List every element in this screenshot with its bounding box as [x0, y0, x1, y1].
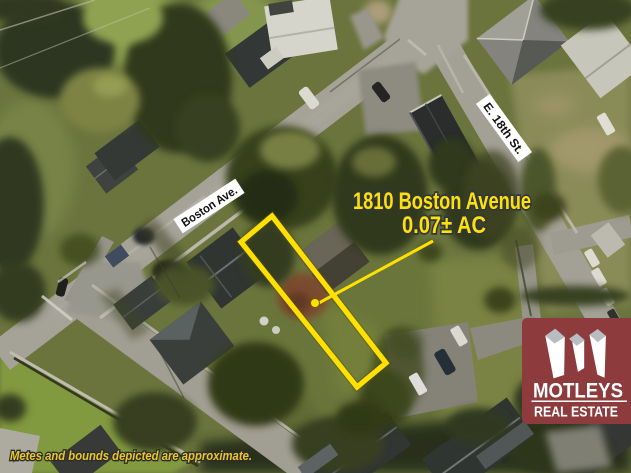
- svg-text:MOTLEYS: MOTLEYS: [533, 380, 623, 403]
- svg-text:1810 Boston Avenue: 1810 Boston Avenue: [353, 188, 531, 215]
- svg-text:Metes and bounds depicted are: Metes and bounds depicted are approximat…: [10, 448, 252, 463]
- svg-text:REAL ESTATE: REAL ESTATE: [534, 404, 618, 421]
- svg-text:0.07± AC: 0.07± AC: [402, 212, 486, 239]
